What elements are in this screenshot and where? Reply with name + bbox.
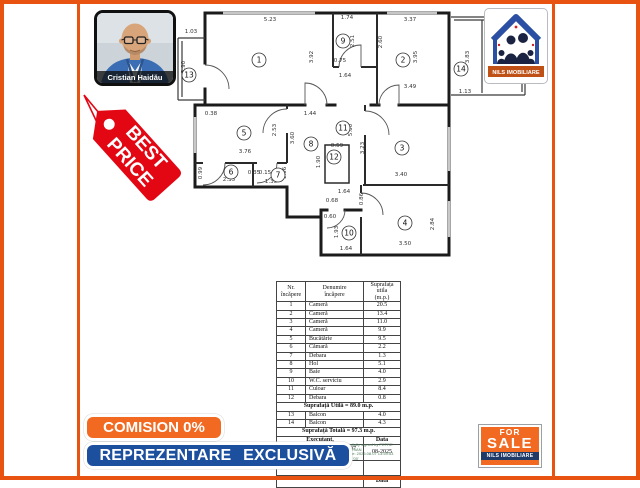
dim-label: 0.75 bbox=[334, 58, 347, 64]
table-cell: Hol bbox=[306, 361, 364, 369]
room-number-label: 6 bbox=[229, 168, 234, 177]
area-table-header: Nr. încăpereDenumire încăpereSuprafața u… bbox=[277, 282, 401, 302]
table-cell bbox=[277, 476, 364, 488]
dim-label: 3.23 bbox=[360, 141, 366, 154]
table-cell: 0.8 bbox=[364, 394, 401, 402]
subtotal-row-cell: Suprafață Utilă = 89.0 m.p. bbox=[277, 403, 401, 411]
table-row: 9Baie4.0 bbox=[277, 369, 401, 377]
dim-label: 3.37 bbox=[404, 17, 417, 23]
room-number-label: 2 bbox=[401, 56, 406, 65]
dim-label: 3.50 bbox=[399, 241, 412, 247]
dim-label: 0.99 bbox=[198, 166, 204, 179]
dim-label: 1.44 bbox=[304, 111, 317, 117]
table-cell: Cămară bbox=[306, 344, 364, 352]
agent-photo: Cristian Haidău bbox=[94, 10, 176, 86]
table-cell: 1 bbox=[277, 302, 306, 310]
table-row: Data bbox=[277, 476, 401, 488]
for-sale-text-2: SALE bbox=[487, 437, 533, 450]
table-cell: 9.9 bbox=[364, 327, 401, 335]
dim-label: 3.60 bbox=[290, 131, 296, 144]
table-cell: Balcon bbox=[306, 411, 364, 419]
room-number-label: 8 bbox=[309, 140, 314, 149]
table-row: 3Cameră11.0 bbox=[277, 319, 401, 327]
table-cell: 1.3 bbox=[364, 352, 401, 360]
table-cell: 4 bbox=[277, 327, 306, 335]
dim-label: 2.60 bbox=[378, 35, 384, 48]
dim-label: 1.64 bbox=[340, 246, 353, 252]
room-number-label: 1 bbox=[257, 56, 262, 65]
table-cell: 12 bbox=[277, 394, 306, 402]
dim-label: 1.90 bbox=[316, 155, 322, 168]
room-number-label: 5 bbox=[242, 129, 247, 138]
table-row: Suprafață Utilă = 89.0 m.p. bbox=[277, 403, 401, 411]
table-cell: Debara bbox=[306, 352, 364, 360]
table-cell: 14 bbox=[277, 419, 306, 427]
room-number-label: 9 bbox=[341, 37, 346, 46]
table-row: 6Cămară2.2 bbox=[277, 344, 401, 352]
table-row: 2Cameră13.4 bbox=[277, 310, 401, 318]
table-cell: 9.5 bbox=[364, 335, 401, 343]
room-number-label: 10 bbox=[344, 229, 354, 238]
dim-label: 1.93 bbox=[334, 225, 340, 238]
dim-label: 2.53 bbox=[272, 123, 278, 136]
table-cell: W.C. serviciu bbox=[306, 377, 364, 385]
room-number-label: 7 bbox=[276, 171, 281, 180]
dim-label: 0.86 bbox=[359, 192, 365, 205]
table-cell: 6 bbox=[277, 344, 306, 352]
table-cell: 3 bbox=[277, 319, 306, 327]
table-cell: Cameră bbox=[306, 319, 364, 327]
room-number-label: 11 bbox=[338, 124, 348, 133]
table-cell: 2.2 bbox=[364, 344, 401, 352]
glasses-icon bbox=[125, 37, 134, 44]
table-cell: 11 bbox=[277, 386, 306, 394]
table-row: 5Bucătărie9.5 bbox=[277, 335, 401, 343]
table-header-cell: Suprafața utila (m.p.) bbox=[364, 282, 401, 302]
table-cell: 4.0 bbox=[364, 411, 401, 419]
logo-banner-text: NILS IMOBILIARE bbox=[492, 70, 540, 76]
table-row: 12Debara0.8 bbox=[277, 394, 401, 402]
door-arcs bbox=[203, 45, 399, 228]
exclusive-banner-text: REPREZENTARE EXCLUSIVĂ bbox=[100, 447, 337, 465]
dim-label: 1.64 bbox=[339, 73, 352, 79]
dim-label: 3.76 bbox=[239, 149, 252, 155]
exclusive-banner: REPREZENTARE EXCLUSIVĂ bbox=[84, 442, 352, 469]
table-cell: 13 bbox=[277, 411, 306, 419]
table-cell: 2.9 bbox=[364, 377, 401, 385]
left-divider-line bbox=[77, 4, 80, 476]
table-cell: 9 bbox=[277, 369, 306, 377]
best-price-tag: BEST PRICE bbox=[76, 90, 198, 218]
table-cell: 10 bbox=[277, 377, 306, 385]
family-icon bbox=[497, 33, 535, 64]
dim-label: 1.13 bbox=[459, 89, 472, 95]
room-number-label: 3 bbox=[400, 144, 405, 153]
bottom-data-cell: Data bbox=[364, 476, 401, 488]
dim-label: 3.83 bbox=[465, 50, 471, 63]
for-sale-agency-strip: NILS IMOBILIARE bbox=[481, 452, 539, 460]
agency-logo: NILS IMOBILIARE bbox=[484, 8, 548, 84]
room-number-label: 12 bbox=[329, 153, 339, 162]
dim-label: 2.84 bbox=[430, 217, 436, 230]
total-row-cell: Suprafață Totală = 97.3 m.p. bbox=[277, 428, 401, 436]
table-row: Suprafață Totală = 97.3 m.p. bbox=[277, 428, 401, 436]
table-cell: Debara bbox=[306, 394, 364, 402]
right-divider-line bbox=[552, 4, 555, 476]
table-header-cell: Denumire încăpere bbox=[306, 282, 364, 302]
dim-label: 0.60 bbox=[324, 214, 337, 220]
table-cell: 4.3 bbox=[364, 419, 401, 427]
house-roof-icon bbox=[493, 17, 539, 40]
table-cell: 13.4 bbox=[364, 310, 401, 318]
table-cell: Cameră bbox=[306, 302, 364, 310]
floor-plan: 1.033.905.233.921.742.510.752.603.373.95… bbox=[175, 5, 537, 263]
table-cell: 5 bbox=[277, 335, 306, 343]
dim-label: 0.68 bbox=[326, 198, 339, 204]
table-cell: Culoar bbox=[306, 386, 364, 394]
table-header-cell: Nr. încăpere bbox=[277, 282, 306, 302]
table-row: 7Debara1.3 bbox=[277, 352, 401, 360]
dim-label: 3.40 bbox=[395, 172, 408, 178]
table-cell: 8 bbox=[277, 361, 306, 369]
table-cell: 11.0 bbox=[364, 319, 401, 327]
table-row: 8Hol5.1 bbox=[277, 361, 401, 369]
dim-label: 1.64 bbox=[338, 189, 351, 195]
table-cell: Cameră bbox=[306, 327, 364, 335]
agent-name-label: Cristian Haidău bbox=[97, 71, 173, 83]
digital-signature-stamp: Digitally signed by PETRE MARIAN Date: 2… bbox=[346, 443, 400, 461]
table-cell: Baie bbox=[306, 369, 364, 377]
dim-label: 0.59 bbox=[331, 143, 344, 149]
dim-label: 3.49 bbox=[404, 84, 417, 90]
table-row: 14Balcon4.3 bbox=[277, 419, 401, 427]
dim-label: 3.95 bbox=[413, 50, 419, 63]
table-cell: 7 bbox=[277, 352, 306, 360]
for-sale-badge: FOR SALE NILS IMOBILIARE bbox=[478, 424, 542, 468]
table-cell: Bucătărie bbox=[306, 335, 364, 343]
table-cell: Cameră bbox=[306, 310, 364, 318]
room-number-label: 14 bbox=[456, 65, 466, 74]
table-cell: Balcon bbox=[306, 419, 364, 427]
dim-label: 1.74 bbox=[341, 15, 354, 21]
room-number-label: 4 bbox=[403, 219, 408, 228]
table-row: 13Balcon4.0 bbox=[277, 411, 401, 419]
table-row: 11Culoar8.4 bbox=[277, 386, 401, 394]
table-row: 4Cameră9.9 bbox=[277, 327, 401, 335]
table-row: 10W.C. serviciu2.9 bbox=[277, 377, 401, 385]
table-cell: 5.1 bbox=[364, 361, 401, 369]
window-gaps bbox=[195, 13, 449, 237]
room-number-label: 13 bbox=[184, 71, 194, 80]
window-lines bbox=[194, 12, 450, 237]
table-cell bbox=[364, 461, 401, 476]
dim-label: 2.51 bbox=[350, 34, 356, 47]
table-cell: 2 bbox=[277, 310, 306, 318]
table-cell: 4.0 bbox=[364, 369, 401, 377]
commission-banner: COMISION 0% bbox=[84, 414, 224, 441]
dim-label: 0.38 bbox=[205, 111, 218, 117]
dimension-labels: 1.033.905.233.921.742.510.752.603.373.95… bbox=[181, 15, 472, 252]
commission-banner-text: COMISION 0% bbox=[103, 419, 205, 436]
dim-label: 0.15 bbox=[259, 170, 272, 176]
table-cell: 20.5 bbox=[364, 302, 401, 310]
balcony-walls bbox=[178, 17, 525, 100]
dim-label: 1.03 bbox=[185, 29, 198, 35]
dim-label: 5.23 bbox=[264, 17, 277, 23]
table-row: 1Cameră20.5 bbox=[277, 302, 401, 310]
table-cell: 8.4 bbox=[364, 386, 401, 394]
dim-label: 3.92 bbox=[309, 51, 315, 63]
